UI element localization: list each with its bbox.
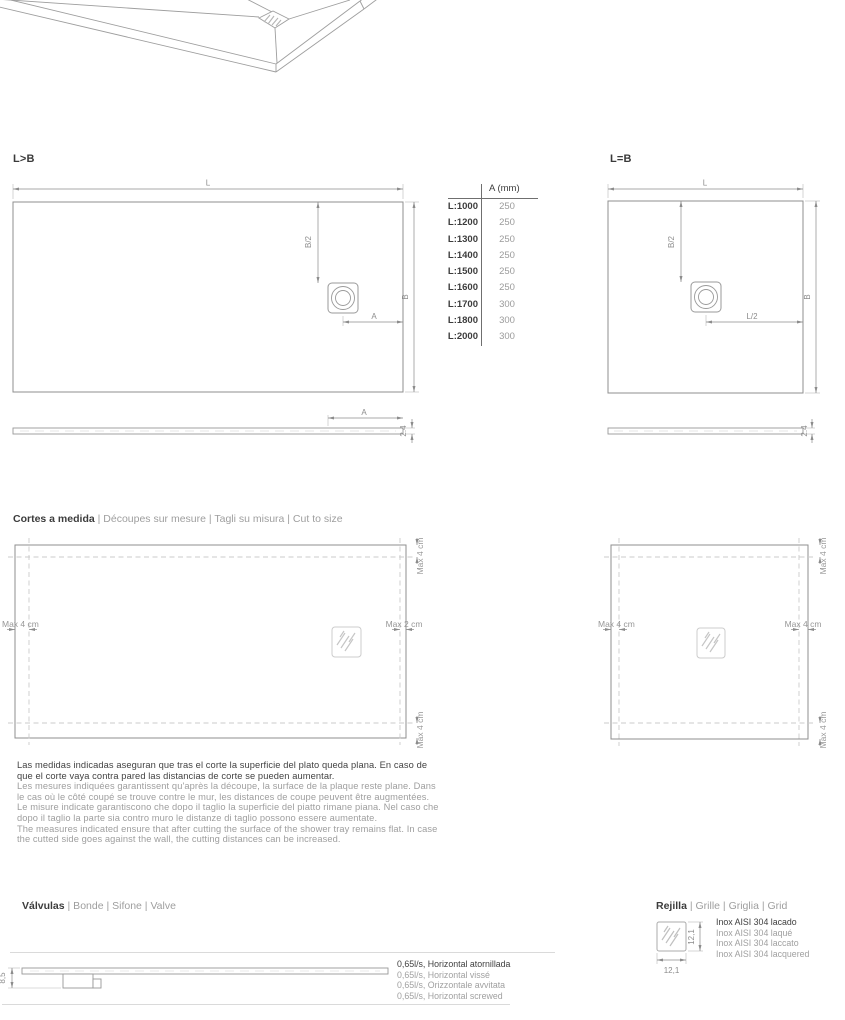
dim-label-grate-width: 12,1 [664, 966, 680, 975]
model-cell: L:1200 [440, 215, 478, 231]
model-cell: L:1300 [440, 232, 478, 248]
dim-label-thickness: 2.4 [399, 425, 408, 437]
dim-label-grate-height: 12,1 [687, 929, 696, 945]
model-cell: L:1700 [440, 297, 478, 313]
max-cut-label-right: Max 4 cm [785, 619, 822, 629]
valve-spec: 0,65l/s, Orizzontale avvitata [397, 980, 510, 991]
cut-diagram-rectangular: Max 4 cm Max 2 cm Max 4 cm Max 4 cm [0, 535, 445, 750]
dim-label-A: A [371, 312, 377, 321]
shower-tray-datasheet-page: L>B L=B L B B/2 A A [0, 0, 845, 1020]
dim-label-thickness: 2.4 [800, 425, 809, 437]
valves-title-translations: | Bonde | Sifone | Valve [65, 900, 176, 912]
dim-label-B: B [803, 294, 812, 299]
cut-section-header: Cortes a medida | Découpes sur mesure | … [13, 513, 343, 525]
valves-section-header: Válvulas | Bonde | Sifone | Valve [22, 900, 176, 912]
value-cell: 250 [478, 280, 536, 296]
max-cut-label-left: Max 4 cm [2, 619, 39, 629]
grid-spec: Inox AISI 304 laqué [716, 928, 809, 939]
grid-title-primary: Rejilla [656, 900, 687, 912]
grid-title-translations: | Grille | Griglia | Grid [687, 900, 787, 912]
max-cut-label-bottom: Max 4 cm [415, 712, 425, 749]
valve-spec: 0,65l/s, Horizontal atornillada [397, 959, 510, 970]
max-cut-label-bottom: Max 4 cm [818, 712, 828, 749]
grate-icon [657, 922, 686, 951]
dim-label-L2: L/2 [746, 312, 758, 321]
value-cell: 250 [478, 215, 536, 231]
max-cut-label-top: Max 4 cm [415, 538, 425, 575]
note-line-en: the cutted side goes against the wall, t… [17, 834, 439, 845]
table-row: L:1200250 [440, 215, 536, 231]
value-cell: 250 [478, 199, 536, 215]
valve-body [63, 974, 101, 988]
max-cut-label-top: Max 4 cm [818, 538, 828, 575]
dim-label-L: L [206, 179, 211, 188]
model-cell: L:1400 [440, 248, 478, 264]
cut-title-primary: Cortes a medida [13, 513, 95, 525]
valve-spec-list: 0,65l/s, Horizontal atornillada 0,65l/s,… [397, 959, 510, 1002]
value-cell: 300 [478, 329, 536, 345]
table-row: L:1300250 [440, 232, 536, 248]
row-divider [10, 952, 555, 953]
value-cell: 300 [478, 297, 536, 313]
grid-spec: Inox AISI 304 lacquered [716, 949, 809, 960]
grid-section-header: Rejilla | Grille | Griglia | Grid [656, 900, 787, 912]
table-row: L:1800300 [440, 313, 536, 329]
valves-title-primary: Válvulas [22, 900, 65, 912]
cut-diagram-square: Max 4 cm Max 4 cm Max 4 cm Max 4 cm [595, 535, 845, 750]
tray-edge [0, 0, 276, 64]
max-cut-label-left: Max 4 cm [598, 619, 635, 629]
dim-label-B2: B/2 [304, 235, 313, 248]
dim-label-L: L [703, 179, 708, 188]
dim-label-valve-height: 8,5 [0, 972, 7, 984]
drain-icon [691, 282, 721, 312]
table-row: L:1600250 [440, 280, 536, 296]
value-cell: 300 [478, 313, 536, 329]
drain-icon [332, 627, 361, 657]
drain-icon [328, 283, 358, 313]
table-header: A (mm) [489, 183, 520, 194]
table-row: L:1400250 [440, 248, 536, 264]
valve-spec: 0,65l/s, Horizontal screwed [397, 991, 510, 1002]
note-line-fr: Les mesures indiquées garantissent qu'ap… [17, 781, 439, 792]
table-row: L:2000300 [440, 329, 536, 345]
note-line-fr: le cas où le côté coupé se trouve contre… [17, 792, 439, 803]
bottom-divider [2, 1004, 510, 1005]
dim-label-profile-A: A [361, 408, 367, 417]
model-cell: L:1500 [440, 264, 478, 280]
note-line-es: que el corte vaya contra pared las dista… [17, 771, 439, 782]
dim-label-B: B [401, 294, 410, 299]
model-cell: L:1000 [440, 199, 478, 215]
value-cell: 250 [478, 264, 536, 280]
diagram-rectangular-tray: L B B/2 A A 2.4 [0, 150, 445, 450]
grid-spec-list: Inox AISI 304 lacado Inox AISI 304 laqué… [716, 917, 809, 960]
drain-icon [259, 11, 289, 28]
table-row: L:1500250 [440, 264, 536, 280]
max-cut-label-right: Max 2 cm [386, 619, 423, 629]
note-line-it: Le misure indicate garantiscono che dopo… [17, 802, 439, 813]
tray-3d-drawing [0, 0, 400, 95]
valve-spec: 0,65l/s, Horizontal vissé [397, 970, 510, 981]
grid-drawing: 12,1 12,1 [650, 915, 725, 979]
diagram-square-tray: L B B/2 L/2 2.4 [600, 150, 845, 450]
drain-icon [697, 628, 725, 658]
table-row: L:1000250 [440, 199, 536, 215]
grid-spec: Inox AISI 304 lacado [716, 917, 809, 928]
model-cell: L:1800 [440, 313, 478, 329]
cut-note-paragraph: Las medidas indicadas aseguran que tras … [17, 760, 439, 845]
cut-title-translations: | Découpes sur mesure | Tagli su misura … [95, 513, 343, 525]
note-line-es: Las medidas indicadas aseguran que tras … [17, 760, 439, 771]
model-cell: L:1600 [440, 280, 478, 296]
table-row: L:1700300 [440, 297, 536, 313]
grid-spec: Inox AISI 304 laccato [716, 938, 809, 949]
note-line-en: The measures indicated ensure that after… [17, 824, 439, 835]
value-cell: 250 [478, 248, 536, 264]
model-cell: L:2000 [440, 329, 478, 345]
dim-label-B2: B/2 [667, 235, 676, 248]
value-cell: 250 [478, 232, 536, 248]
note-line-it: dopo il taglio la parte sia contro muro … [17, 813, 439, 824]
